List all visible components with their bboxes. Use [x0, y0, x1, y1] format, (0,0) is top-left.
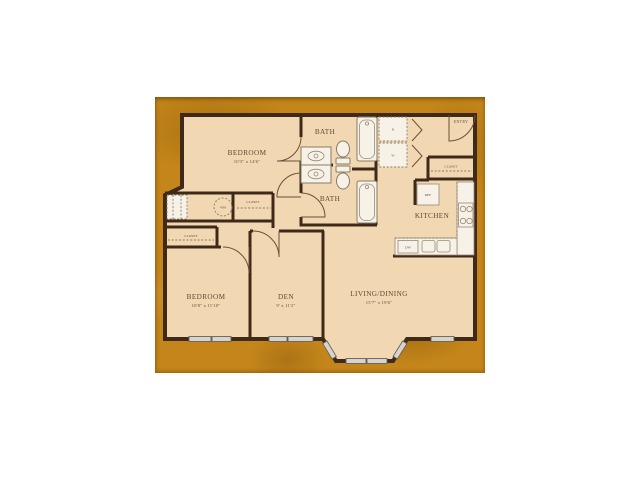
living-dining-label: LIVING/DINING	[350, 290, 408, 298]
den-label: DEN	[278, 293, 294, 301]
entry-label: ENTRY	[454, 120, 468, 124]
bath-top-label: BATH	[315, 128, 335, 136]
refrigerator-label: REF	[425, 193, 432, 197]
dishwasher-label: DW	[405, 246, 412, 250]
bedroom-bottom-dims: 10'8" x 11'10"	[192, 303, 221, 308]
living-dining-dims: 15'7" x 19'6"	[366, 300, 392, 305]
hall-closet-label: CLOSET	[246, 200, 260, 204]
den-dims: 9' x 11'2"	[276, 303, 295, 308]
page-root: BEDROOM 10'3" x 14'6" BATH BATH ENTRY KI…	[0, 0, 639, 479]
toilet-icon	[337, 173, 350, 189]
burner-icon	[467, 206, 472, 211]
water-heater-label: WH	[220, 206, 226, 210]
kitchen-label: KITCHEN	[415, 212, 450, 220]
bath-bottom-label: BATH	[320, 195, 340, 203]
floor-plan-drawing: BEDROOM 10'3" x 14'6" BATH BATH ENTRY KI…	[155, 97, 485, 373]
sink-bowl-icon	[422, 241, 435, 253]
burner-icon	[460, 206, 465, 211]
bedroom-closet-label: CLOSET	[184, 234, 198, 238]
bedroom-top-dims: 10'3" x 14'6"	[234, 159, 260, 164]
entry-closet-label: CLOSET	[444, 165, 458, 169]
bedroom-top-label: BEDROOM	[228, 149, 267, 157]
toilet-icon	[337, 141, 350, 157]
sink-bowl-icon	[437, 241, 450, 253]
burner-icon	[460, 218, 465, 223]
dryer-label: D	[392, 128, 395, 132]
toilet-tank-icon	[336, 158, 350, 164]
linen-shelves-icon	[167, 195, 187, 219]
tub-drain-icon	[365, 185, 368, 188]
bedroom-bottom-label: BEDROOM	[187, 293, 226, 301]
tub-drain-icon	[365, 122, 368, 125]
toilet-tank-icon	[336, 166, 350, 172]
burner-icon	[467, 218, 472, 223]
floor-plan-photo: BEDROOM 10'3" x 14'6" BATH BATH ENTRY KI…	[155, 97, 485, 373]
